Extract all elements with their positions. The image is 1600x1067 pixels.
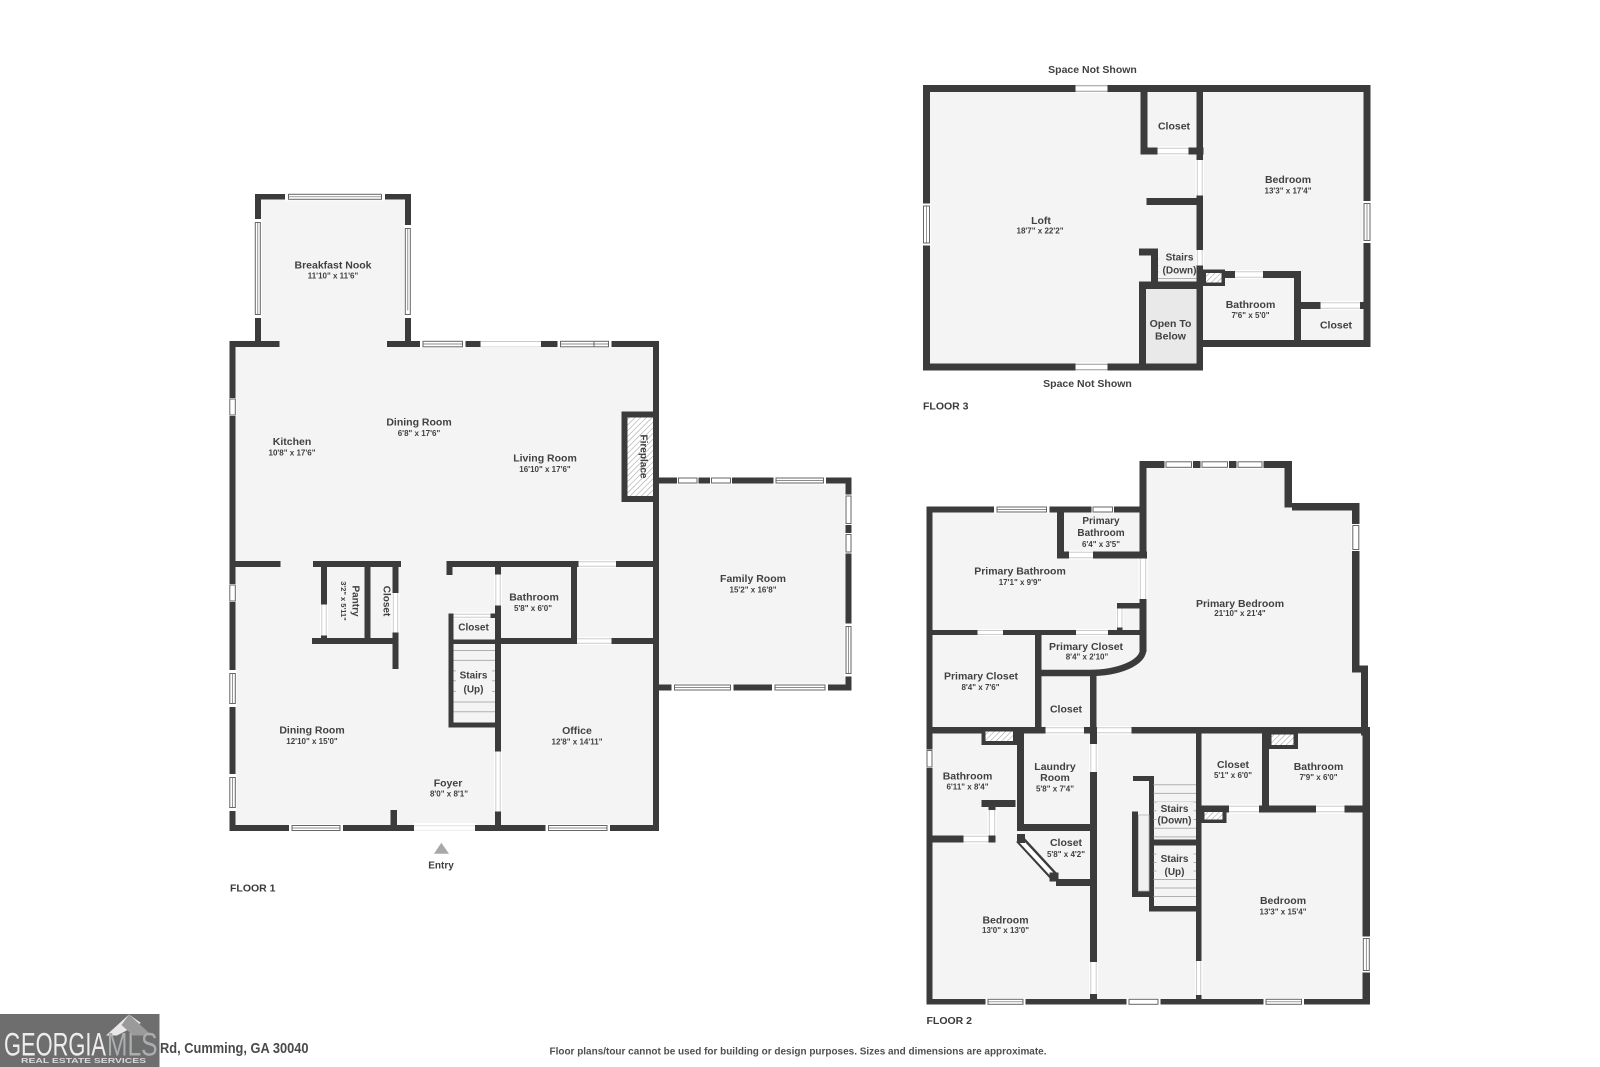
- svg-text:12'8" x 14'11": 12'8" x 14'11": [552, 738, 603, 747]
- svg-text:15'2" x 16'8": 15'2" x 16'8": [730, 586, 777, 595]
- svg-text:Family Room: Family Room: [720, 573, 786, 585]
- svg-text:Closet: Closet: [1320, 320, 1353, 332]
- svg-text:Stairs: Stairs: [1161, 804, 1189, 815]
- svg-text:13'0" x 13'0": 13'0" x 13'0": [982, 926, 1029, 935]
- svg-text:Entry: Entry: [428, 861, 454, 872]
- svg-text:Fireplace: Fireplace: [638, 435, 649, 479]
- svg-text:(Down): (Down): [1163, 265, 1197, 276]
- svg-text:7'9" x 6'0": 7'9" x 6'0": [1299, 773, 1337, 782]
- svg-text:11'10" x 11'6": 11'10" x 11'6": [308, 272, 359, 281]
- svg-text:13'3" x 17'4": 13'3" x 17'4": [1265, 187, 1312, 196]
- svg-text:6'4" x 3'5": 6'4" x 3'5": [1082, 540, 1120, 549]
- svg-text:Bathroom: Bathroom: [943, 771, 993, 783]
- svg-text:Closet: Closet: [1050, 704, 1083, 716]
- svg-text:Primary Closet: Primary Closet: [944, 671, 1019, 683]
- svg-text:16'10" x 17'6": 16'10" x 17'6": [519, 465, 571, 474]
- svg-text:Laundry: Laundry: [1034, 761, 1076, 773]
- svg-text:18'7" x 22'2": 18'7" x 22'2": [1017, 227, 1064, 236]
- svg-text:Stairs: Stairs: [1166, 253, 1194, 264]
- svg-text:Space Not Shown: Space Not Shown: [1043, 378, 1132, 390]
- svg-text:Bathroom: Bathroom: [509, 592, 559, 604]
- svg-text:Living Room: Living Room: [513, 453, 577, 465]
- svg-text:Closet: Closet: [1050, 837, 1083, 849]
- svg-text:Bedroom: Bedroom: [1265, 174, 1311, 186]
- svg-text:Primary: Primary: [1082, 516, 1120, 527]
- svg-text:13'3" x 15'4": 13'3" x 15'4": [1260, 907, 1307, 916]
- svg-text:6'11" x 8'4": 6'11" x 8'4": [946, 782, 988, 791]
- svg-text:Rd, Cumming, GA 30040: Rd, Cumming, GA 30040: [160, 1040, 309, 1057]
- svg-text:Foyer: Foyer: [434, 778, 463, 790]
- svg-text:17'1" x 9'9": 17'1" x 9'9": [999, 578, 1042, 587]
- svg-text:(Up): (Up): [464, 685, 484, 696]
- svg-text:Breakfast Nook: Breakfast Nook: [294, 260, 371, 272]
- svg-text:(Down): (Down): [1158, 816, 1192, 827]
- svg-text:Closet: Closet: [458, 623, 489, 634]
- svg-text:Office: Office: [562, 725, 592, 737]
- svg-text:Stairs: Stairs: [1161, 854, 1189, 865]
- svg-text:6'8" x 17'6": 6'8" x 17'6": [398, 429, 441, 438]
- svg-text:8'4" x 7'6": 8'4" x 7'6": [961, 683, 999, 692]
- svg-text:Pantry: Pantry: [350, 585, 361, 617]
- svg-text:FLOOR 2: FLOOR 2: [927, 1015, 973, 1027]
- svg-text:Dining Room: Dining Room: [386, 417, 451, 429]
- svg-text:REAL ESTATE SERVICES: REAL ESTATE SERVICES: [21, 1058, 146, 1065]
- svg-text:Dining Room: Dining Room: [279, 725, 344, 737]
- svg-text:10'8" x 17'6": 10'8" x 17'6": [269, 449, 316, 458]
- svg-text:Space Not Shown: Space Not Shown: [1048, 64, 1137, 76]
- svg-text:FLOOR 3: FLOOR 3: [923, 401, 969, 413]
- svg-text:Closet: Closet: [1158, 120, 1191, 132]
- svg-text:21'10" x 21'4": 21'10" x 21'4": [1214, 609, 1266, 618]
- svg-text:8'4" x 2'10": 8'4" x 2'10": [1066, 652, 1109, 661]
- svg-text:Below: Below: [1155, 330, 1187, 342]
- svg-text:3'2" x 5'11": 3'2" x 5'11": [339, 581, 348, 621]
- svg-text:Open To: Open To: [1150, 318, 1192, 330]
- svg-text:Bathroom: Bathroom: [1077, 528, 1124, 539]
- svg-text:FLOOR 1: FLOOR 1: [230, 883, 276, 895]
- svg-text:7'6" x 5'0": 7'6" x 5'0": [1231, 311, 1269, 320]
- svg-text:5'8" x 7'4": 5'8" x 7'4": [1036, 784, 1074, 793]
- svg-text:8'0" x 8'1": 8'0" x 8'1": [430, 790, 468, 799]
- svg-text:Room: Room: [1040, 772, 1070, 784]
- svg-text:5'8" x 4'2": 5'8" x 4'2": [1047, 850, 1085, 859]
- svg-text:Loft: Loft: [1031, 215, 1051, 227]
- svg-text:Bedroom: Bedroom: [1260, 895, 1306, 907]
- svg-text:5'8" x 6'0": 5'8" x 6'0": [514, 604, 552, 613]
- svg-text:(Up): (Up): [1165, 867, 1185, 878]
- svg-text:12'10" x 15'0": 12'10" x 15'0": [286, 737, 338, 746]
- svg-text:Floor plans/tour cannot be use: Floor plans/tour cannot be used for buil…: [550, 1047, 1047, 1058]
- svg-text:Primary Bathroom: Primary Bathroom: [974, 565, 1066, 577]
- svg-text:Stairs: Stairs: [460, 671, 488, 682]
- svg-text:Kitchen: Kitchen: [273, 436, 312, 448]
- svg-text:Primary Closet: Primary Closet: [1049, 641, 1124, 653]
- svg-text:Closet: Closet: [1217, 759, 1250, 771]
- svg-text:5'1" x 6'0": 5'1" x 6'0": [1214, 771, 1252, 780]
- svg-text:Bathroom: Bathroom: [1294, 761, 1344, 773]
- svg-text:Bathroom: Bathroom: [1226, 299, 1276, 311]
- svg-text:Closet: Closet: [381, 586, 392, 617]
